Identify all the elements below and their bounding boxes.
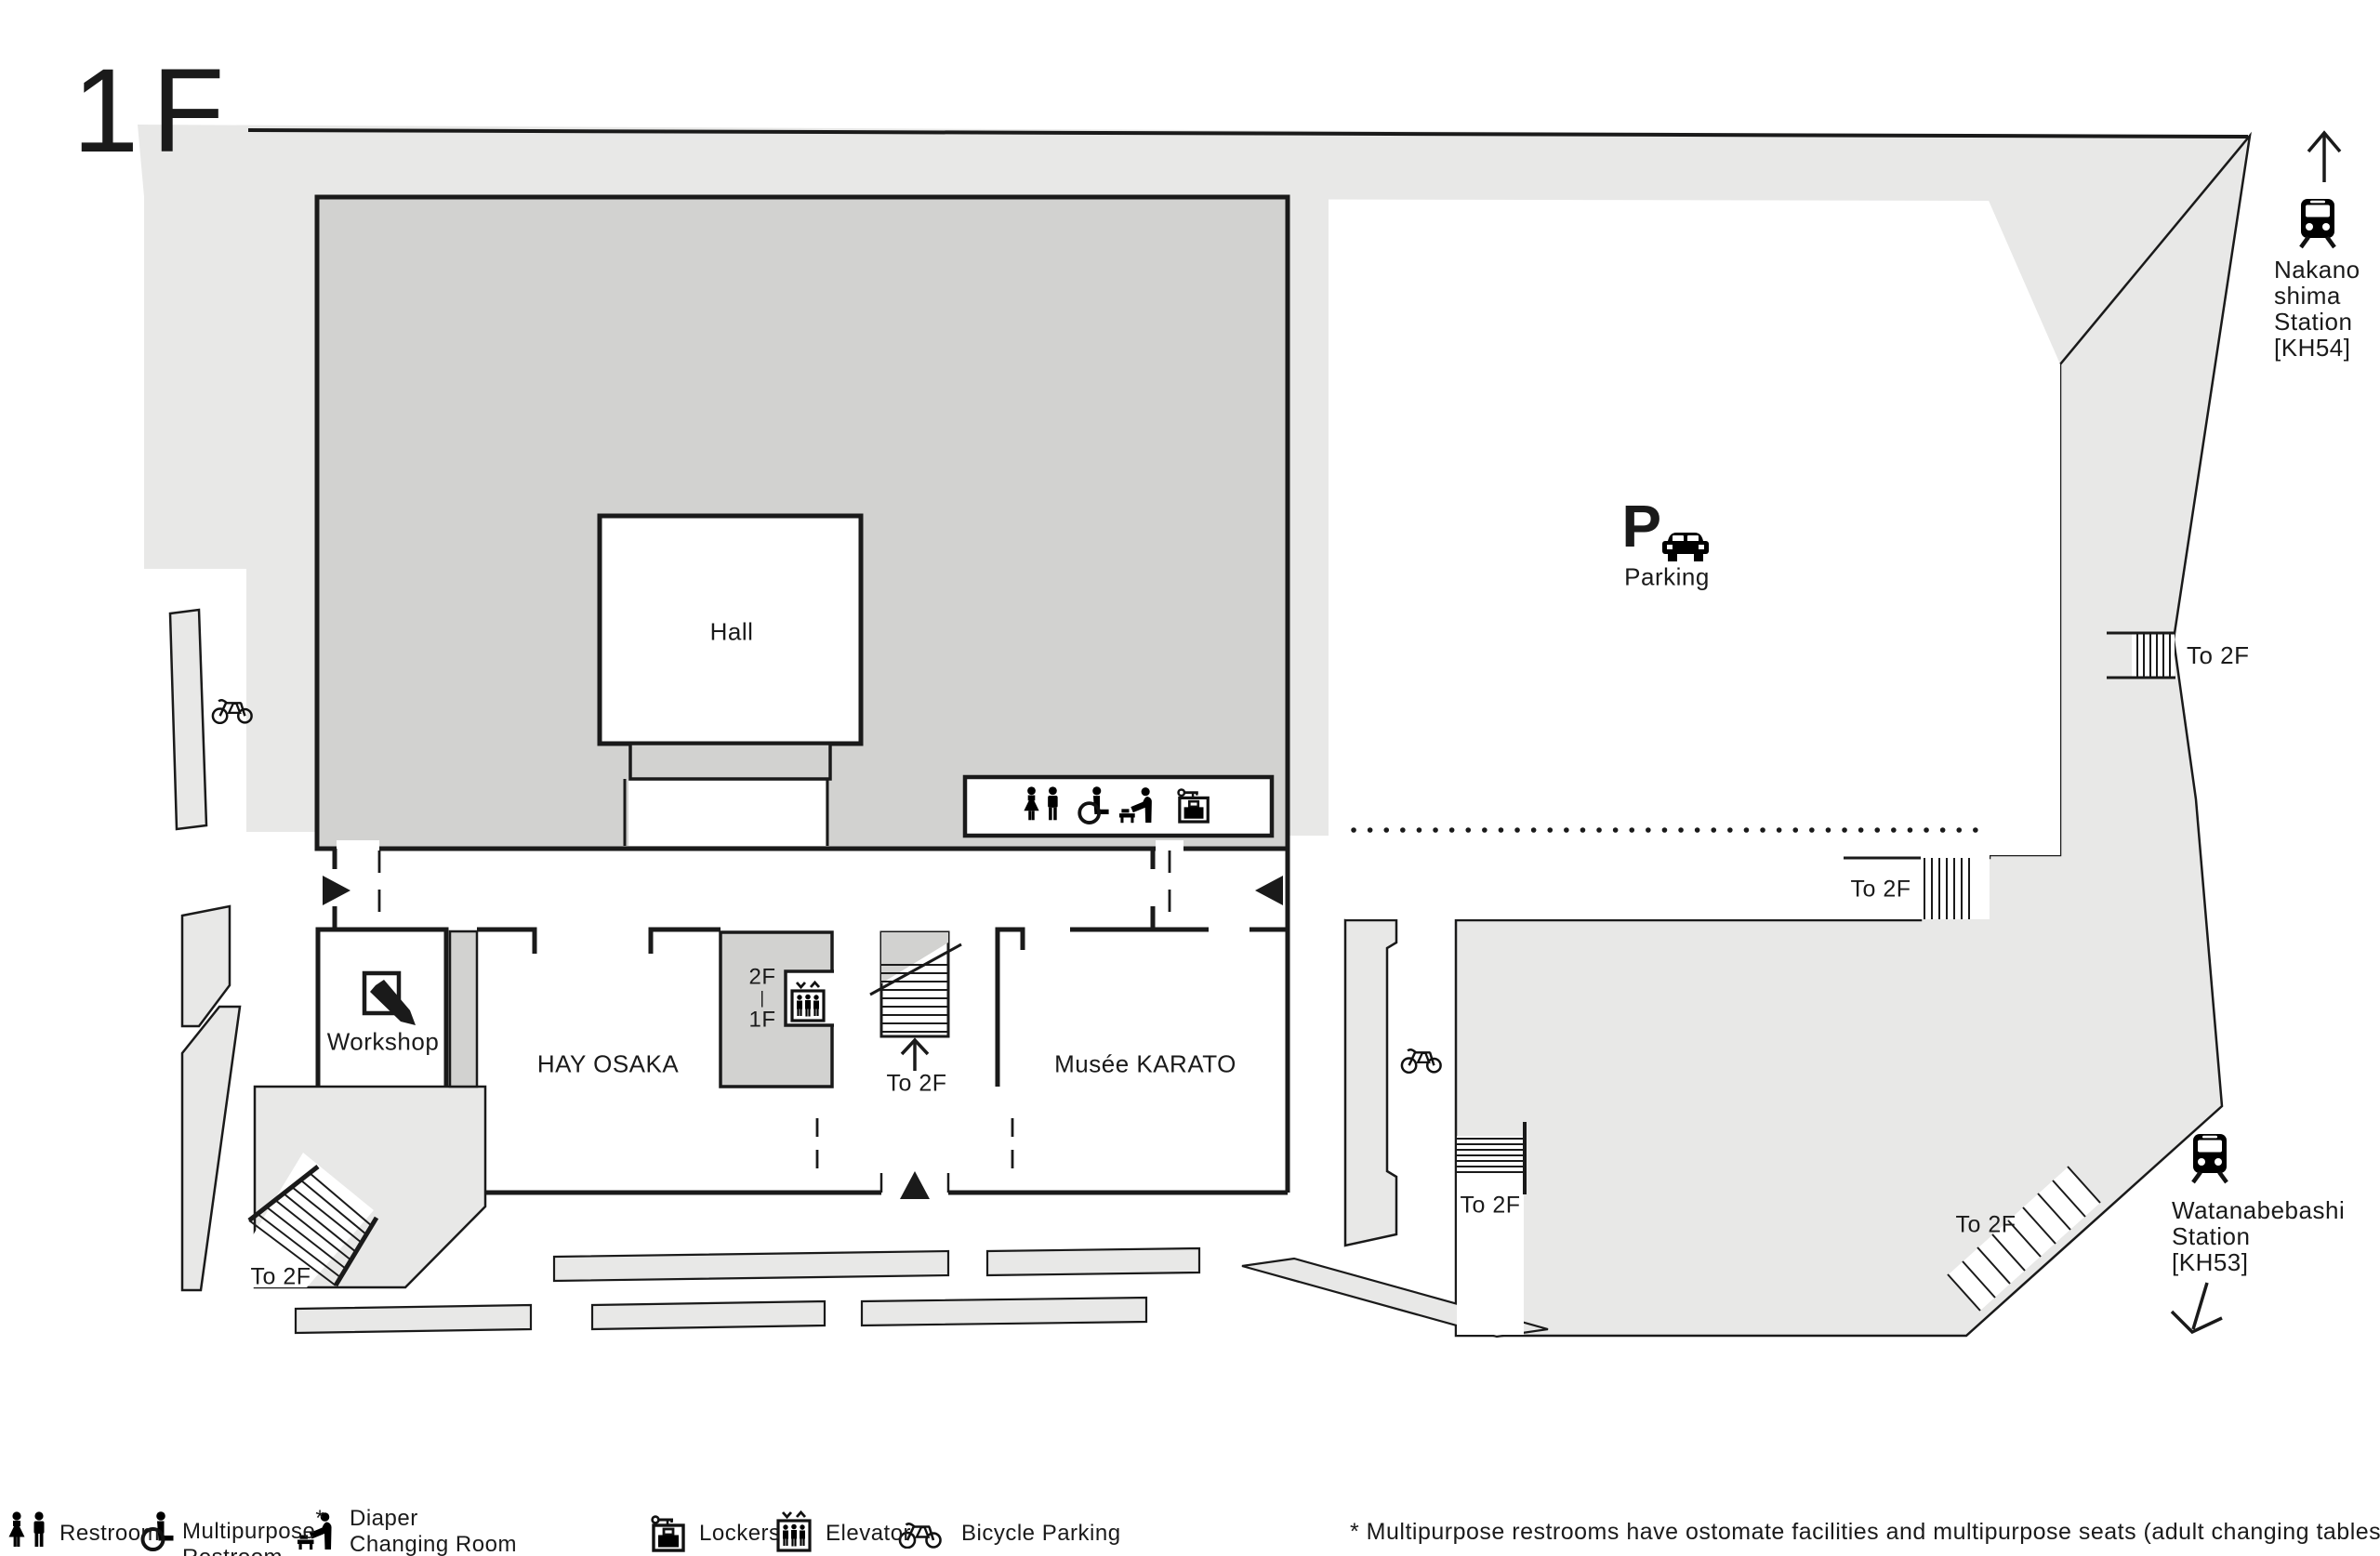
nakanoshima-station-label: Nakano shima Station [KH54] xyxy=(2274,257,2360,361)
train-icon-nakanoshima xyxy=(2301,199,2334,247)
left-road-lower xyxy=(182,1007,240,1290)
entrance-arrow-left-icon xyxy=(1255,876,1283,905)
musee-left-wall xyxy=(998,930,1023,1087)
to-2f-label-mid-right: To 2F xyxy=(1850,877,1911,903)
floor-title: 1F xyxy=(73,43,237,179)
hay-top-wall-left xyxy=(477,930,535,954)
to-2f-label-upper-right: To 2F xyxy=(2187,641,2250,670)
right-pillar-strip xyxy=(1345,920,1396,1246)
central-stairs xyxy=(870,932,961,1071)
hall-building xyxy=(317,197,1288,928)
pillar-bar xyxy=(450,931,477,1087)
legend-multipurpose-label: Multipurpose* Restroom xyxy=(182,1506,324,1556)
legend-diaper-label: Diaper Changing Room xyxy=(350,1506,517,1556)
floor-map-page: 1F Hall P Parking Workshop HAY OSAKA Mus… xyxy=(0,0,2380,1556)
train-icon-watanabebashi xyxy=(2193,1134,2227,1182)
elevator-floor-range: 2F | 1F xyxy=(748,967,775,1031)
nakanoshima-direction-arrow-icon xyxy=(2308,133,2340,182)
to-2f-up-arrow-icon xyxy=(902,1040,928,1071)
legend-lockers-label: Lockers xyxy=(699,1521,781,1547)
to-2f-label-central: To 2F xyxy=(886,1071,946,1098)
legend-elevator-label: Elevator xyxy=(826,1521,911,1547)
workshop-icon xyxy=(364,973,416,1025)
hay-osaka-label: HAY OSAKA xyxy=(537,1050,679,1079)
floor-plan-drawing xyxy=(0,0,2380,1556)
parking-label: Parking xyxy=(1624,563,1710,592)
legend-restroom-label: Restroom xyxy=(59,1521,160,1547)
hay-top-wall-right xyxy=(651,930,721,954)
left-ramp-strip xyxy=(170,610,206,829)
hall-stage xyxy=(630,744,830,779)
main-entrance-arrow-icon xyxy=(900,1171,930,1199)
bottom-walkway-strips xyxy=(296,1248,1548,1337)
legend-note: * Multipurpose restrooms have ostomate f… xyxy=(1350,1519,2380,1546)
musee-karato-label: Musée KARATO xyxy=(1054,1050,1236,1079)
hall-right-strip-area xyxy=(1288,197,1329,836)
hall-label: Hall xyxy=(710,618,754,647)
workshop-label: Workshop xyxy=(327,1028,440,1057)
lower-right-stairs-pocket xyxy=(1457,1122,1525,1335)
watanabebashi-station-label: Watanabebashi Station [KH53] xyxy=(2172,1197,2345,1275)
bicycle-parking-icon-left xyxy=(213,700,252,723)
bicycle-parking-icon-right xyxy=(1402,1049,1441,1073)
to-2f-label-lower-right: To 2F xyxy=(1460,1193,1520,1220)
entrance-arrow-right-icon xyxy=(323,876,350,905)
legend-bicycle-label: Bicycle Parking xyxy=(961,1521,1121,1547)
parking-p-glyph: P xyxy=(1621,492,1661,560)
legend-asterisk: * xyxy=(315,1506,324,1531)
facility-strip-box xyxy=(965,777,1272,836)
left-column-area xyxy=(144,197,317,832)
watanabebashi-direction-arrow-icon xyxy=(2172,1283,2222,1332)
to-2f-label-bottom-left: To 2F xyxy=(250,1264,311,1291)
to-2f-label-bottom-right: To 2F xyxy=(1955,1212,2016,1239)
